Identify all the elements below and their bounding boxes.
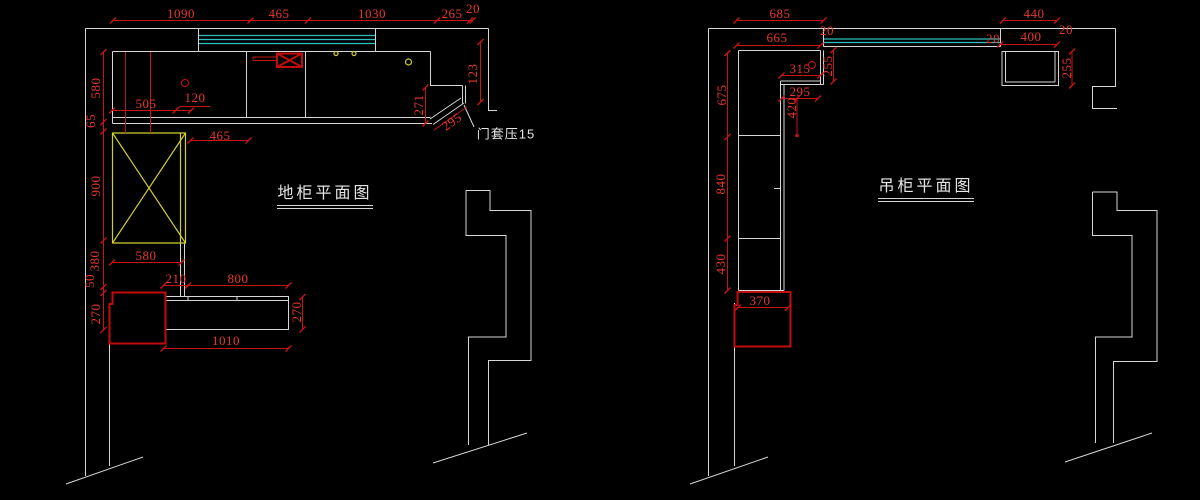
dimension-label: 210 (166, 271, 187, 287)
dimension-label: 265 (442, 6, 463, 22)
dimension-label: 665 (767, 30, 788, 46)
dimension-label: 20 (986, 31, 1000, 47)
dimension-label: 900 (88, 176, 104, 197)
dimension-label: 465 (210, 128, 231, 144)
dimension-label: 1090 (167, 6, 195, 22)
dimension-label: 380 (87, 251, 103, 272)
dimension-label: 800 (228, 271, 249, 287)
cad-drawing-canvas: 1090465103026520580659003805027050512046… (0, 0, 1200, 500)
dimension-label: 675 (714, 85, 730, 106)
dimension-label: 685 (770, 6, 791, 22)
wall-plan-title: 吊柜平面图 (878, 172, 973, 196)
dimension-label: 400 (1021, 29, 1042, 45)
wall-plan-window (824, 29, 1001, 47)
dimension-label: 255 (820, 56, 836, 77)
range-hood-symbol (253, 54, 302, 68)
dimension-label: 20 (1059, 22, 1073, 38)
wall-plan-walls (690, 29, 1157, 485)
base-title-underline (277, 206, 373, 209)
dimension-label: 420 (784, 98, 800, 119)
dimension-label: 580 (88, 78, 104, 99)
dimension-label: 315 (790, 61, 811, 77)
fridge-box (110, 293, 166, 344)
dimension-label: 1030 (358, 6, 386, 22)
dimension-label: 120 (185, 90, 206, 106)
cad-linework (0, 0, 1200, 500)
base-plan-window (199, 29, 376, 52)
door-casing-note: 门套压15 (477, 124, 535, 143)
dimension-label: 1010 (212, 333, 240, 349)
dimension-label: 370 (750, 293, 771, 309)
wall-title-underline (878, 199, 974, 202)
dimension-label: 580 (136, 248, 157, 264)
dimension-label: 465 (269, 6, 290, 22)
dimension-label: 255 (1059, 58, 1075, 79)
dimension-label: 65 (83, 114, 99, 128)
dimension-label: 271 (411, 95, 427, 116)
dimension-label: 430 (713, 254, 729, 275)
burner-circle (182, 80, 189, 87)
dimension-label: 270 (289, 302, 305, 323)
dimension-label: 123 (465, 64, 481, 85)
dimension-label: 270 (88, 304, 104, 325)
dimension-label: 440 (1024, 6, 1045, 22)
dimension-label: 840 (713, 174, 729, 195)
dimension-label: 505 (136, 96, 157, 112)
dimension-label: 20 (820, 23, 834, 39)
dimension-label: 50 (82, 274, 98, 288)
wall-plan-dimensions (728, 21, 1073, 308)
base-plan-title: 地柜平面图 (277, 179, 372, 203)
dimension-label: 20 (466, 1, 480, 17)
